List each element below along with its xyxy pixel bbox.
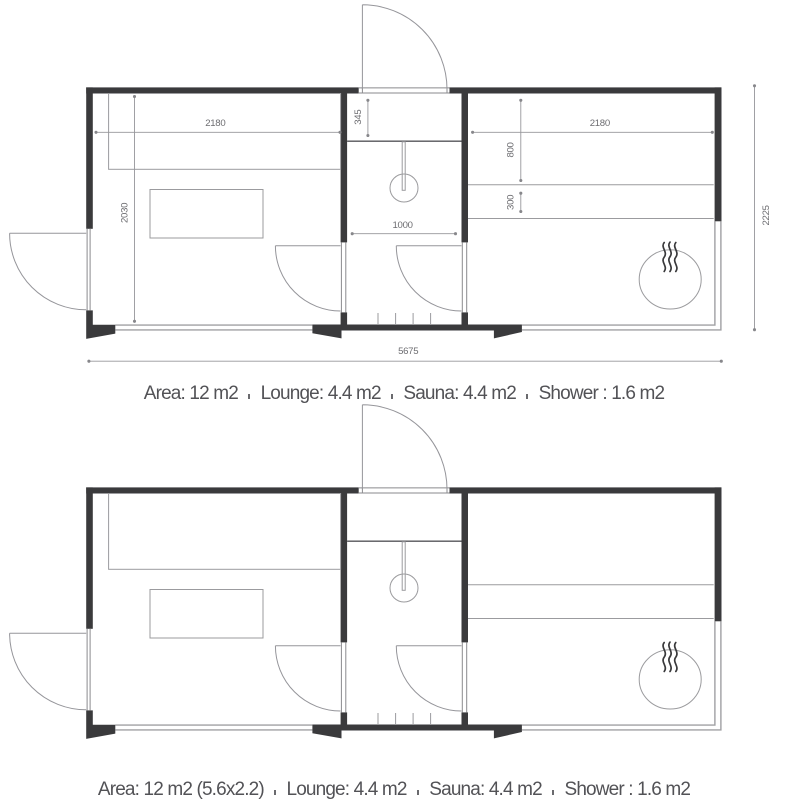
svg-text:300: 300 [506,195,517,210]
svg-text:800: 800 [506,142,517,157]
svg-text:2225: 2225 [761,205,772,225]
svg-text:345: 345 [353,110,364,125]
svg-text:2180: 2180 [205,118,225,129]
svg-text:2180: 2180 [590,118,610,129]
svg-text:2030: 2030 [120,203,131,223]
svg-text:1000: 1000 [393,220,413,231]
svg-text:5675: 5675 [398,346,418,357]
